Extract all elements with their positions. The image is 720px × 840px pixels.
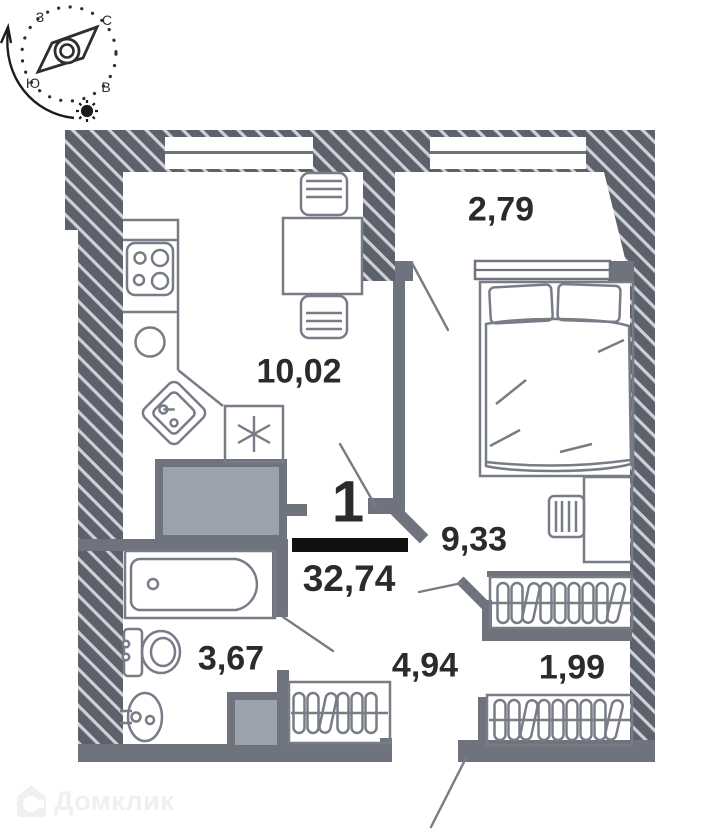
fraction-bar <box>292 538 408 552</box>
washing-machine-icon <box>225 406 283 462</box>
watermark: Домклик <box>14 783 174 819</box>
entrance-door-leaf <box>431 758 466 827</box>
watermark-brand: Домклик <box>54 786 174 817</box>
compass-east-label: В <box>101 79 110 95</box>
desk-chair-icon <box>549 496 584 537</box>
desk-icon <box>584 477 632 562</box>
room-area-bathroom: 3,67 <box>198 640 264 679</box>
wardrobe-door-leaf <box>419 583 462 592</box>
apartment-total-area: 32,74 <box>303 558 396 600</box>
shaft-kitchen <box>155 459 287 543</box>
wardrobe-hall-icon <box>289 682 390 743</box>
compass-arrowhead-icon <box>1 27 11 43</box>
bathtub-icon <box>125 551 275 618</box>
kitchen-round-sink-icon <box>136 328 165 357</box>
room-area-bedroom: 9,33 <box>441 521 507 560</box>
shaft-hallway <box>227 692 284 752</box>
corner-sink-icon <box>140 379 208 447</box>
toilet-icon <box>123 629 180 676</box>
stove-icon <box>127 243 173 295</box>
bathroom-door-leaf <box>283 617 333 651</box>
room-area-kitchen-living: 10,02 <box>256 353 341 392</box>
window-balcony <box>430 137 586 169</box>
compass-south-label: Ю <box>26 75 40 91</box>
balcony-door-leaf <box>412 263 448 330</box>
room-area-hallway: 4,94 <box>392 647 458 686</box>
apartment-number: 1 <box>332 469 364 536</box>
compass-north-label: С <box>102 12 112 28</box>
room-area-balcony: 2,79 <box>468 191 534 230</box>
wardrobe-top-icon <box>490 577 632 628</box>
floorplan-canvas: 2,79 10,02 9,33 3,67 4,94 1,99 1 32,74 З… <box>0 0 720 840</box>
double-bed-icon <box>480 282 633 476</box>
sun-icon <box>76 100 98 122</box>
chair-bottom-icon <box>301 296 347 338</box>
compass-west-label: З <box>36 9 44 25</box>
dining-table-icon <box>283 218 362 294</box>
window-kitchen <box>165 137 313 169</box>
room-area-wardrobe: 1,99 <box>539 649 605 688</box>
bathroom-sink-icon <box>120 693 162 741</box>
domclick-house-icon <box>14 783 48 819</box>
chair-top-icon <box>301 173 347 215</box>
wardrobe-bottom-icon <box>487 695 632 745</box>
balcony-door-window-unit <box>475 261 610 279</box>
compass-rose: З С Ю В <box>0 0 140 133</box>
